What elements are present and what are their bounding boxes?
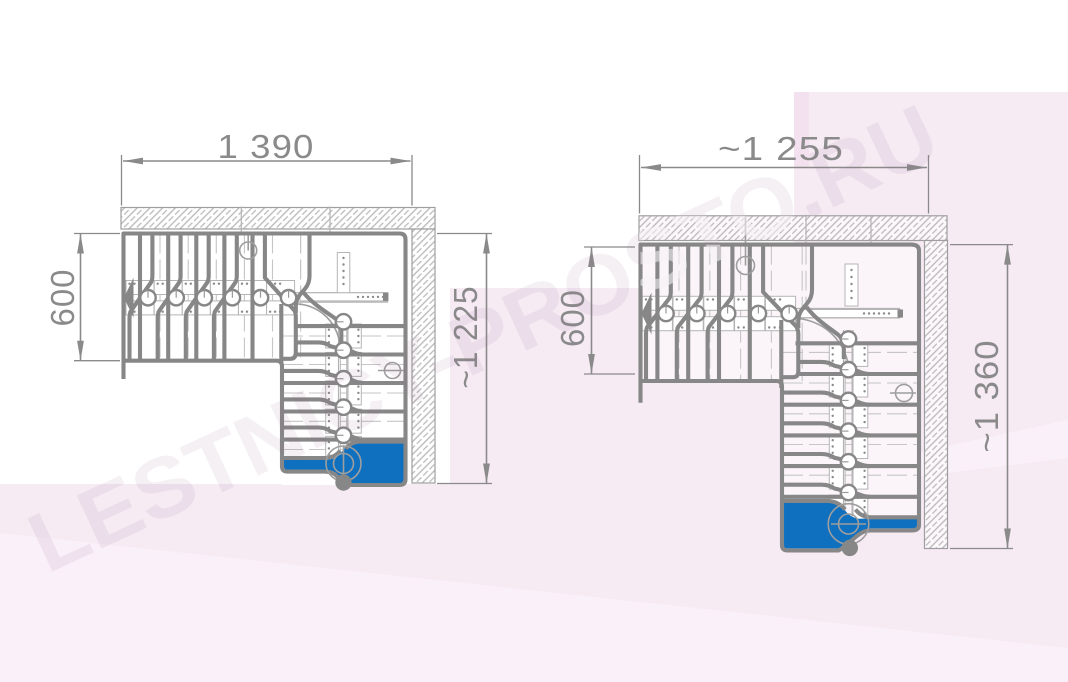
svg-text:1 390: 1 390 [218,129,315,166]
svg-text:600: 600 [45,269,82,327]
svg-text:~1 360: ~1 360 [969,340,1006,453]
